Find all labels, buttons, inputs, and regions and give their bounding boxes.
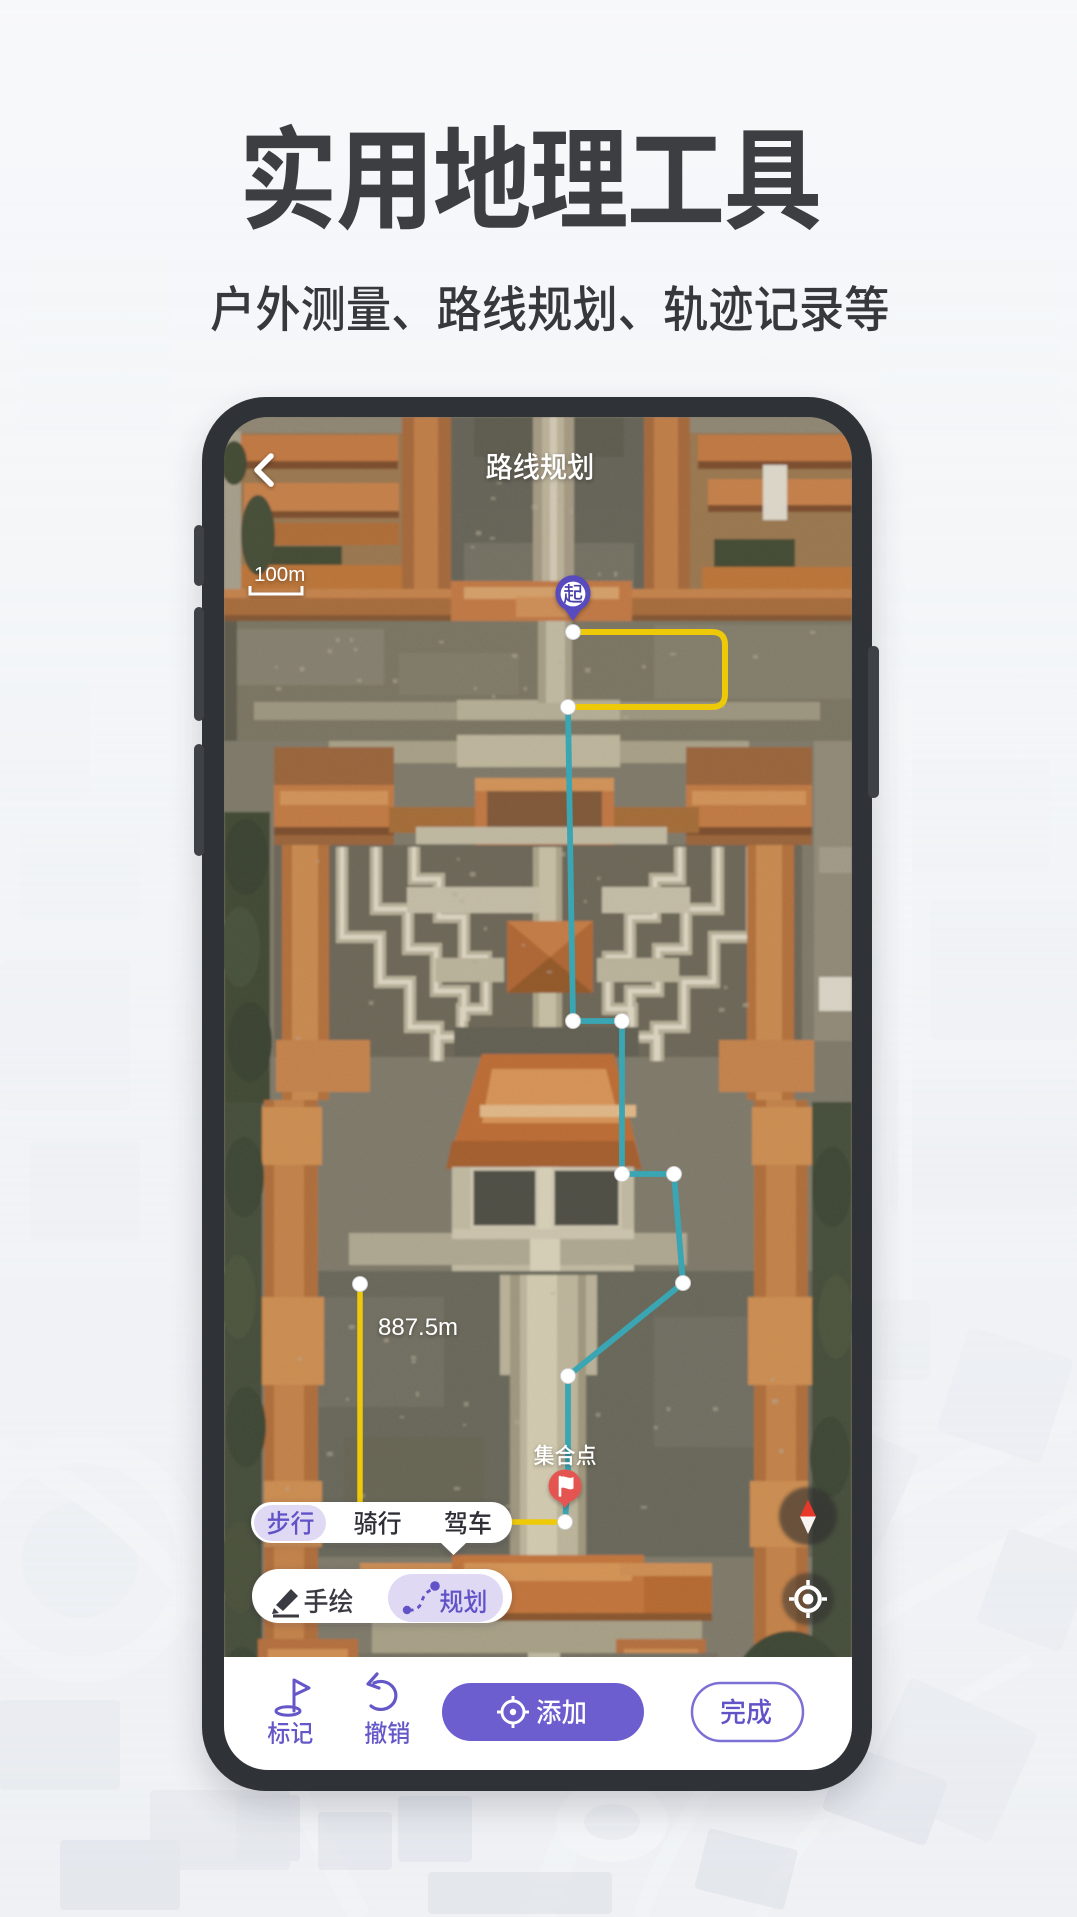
svg-text:100m: 100m	[254, 563, 305, 586]
svg-text:887.5m: 887.5m	[378, 1314, 458, 1341]
